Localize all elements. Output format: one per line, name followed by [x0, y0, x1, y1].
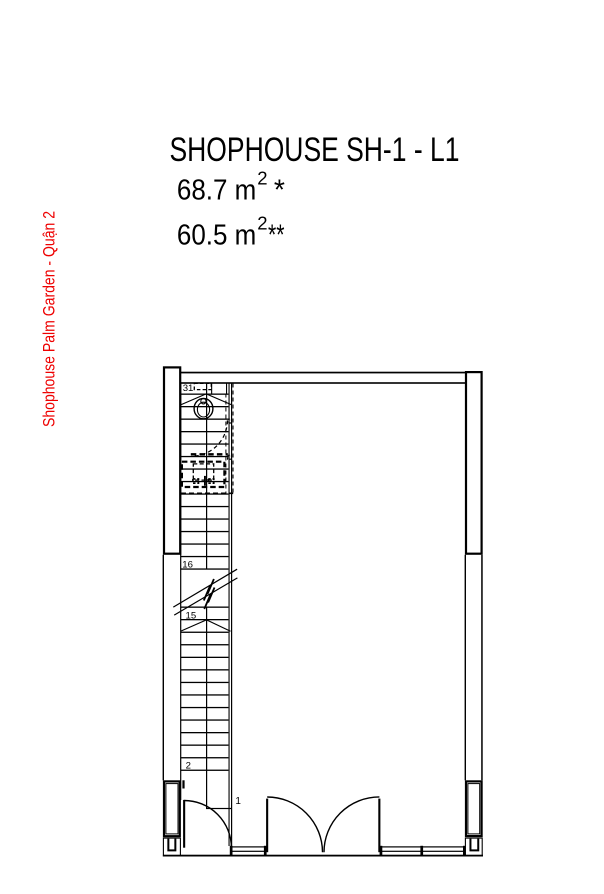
- svg-text:*: *: [274, 175, 285, 207]
- svg-text:2: 2: [257, 213, 267, 234]
- svg-text:1: 1: [235, 796, 241, 807]
- svg-text:SHOPHOUSE SH-1 - L1: SHOPHOUSE SH-1 - L1: [170, 131, 460, 169]
- svg-text:31: 31: [183, 383, 194, 394]
- svg-text:**: **: [268, 220, 285, 252]
- svg-text:15: 15: [186, 610, 197, 621]
- svg-text:2: 2: [257, 168, 267, 189]
- svg-text:2: 2: [186, 760, 191, 771]
- svg-text:Shophouse Palm Garden - Quận 2: Shophouse Palm Garden - Quận 2: [40, 211, 59, 427]
- svg-text:16: 16: [182, 559, 193, 570]
- svg-text:68.7 m: 68.7 m: [177, 175, 256, 207]
- svg-text:60.5 m: 60.5 m: [177, 220, 256, 252]
